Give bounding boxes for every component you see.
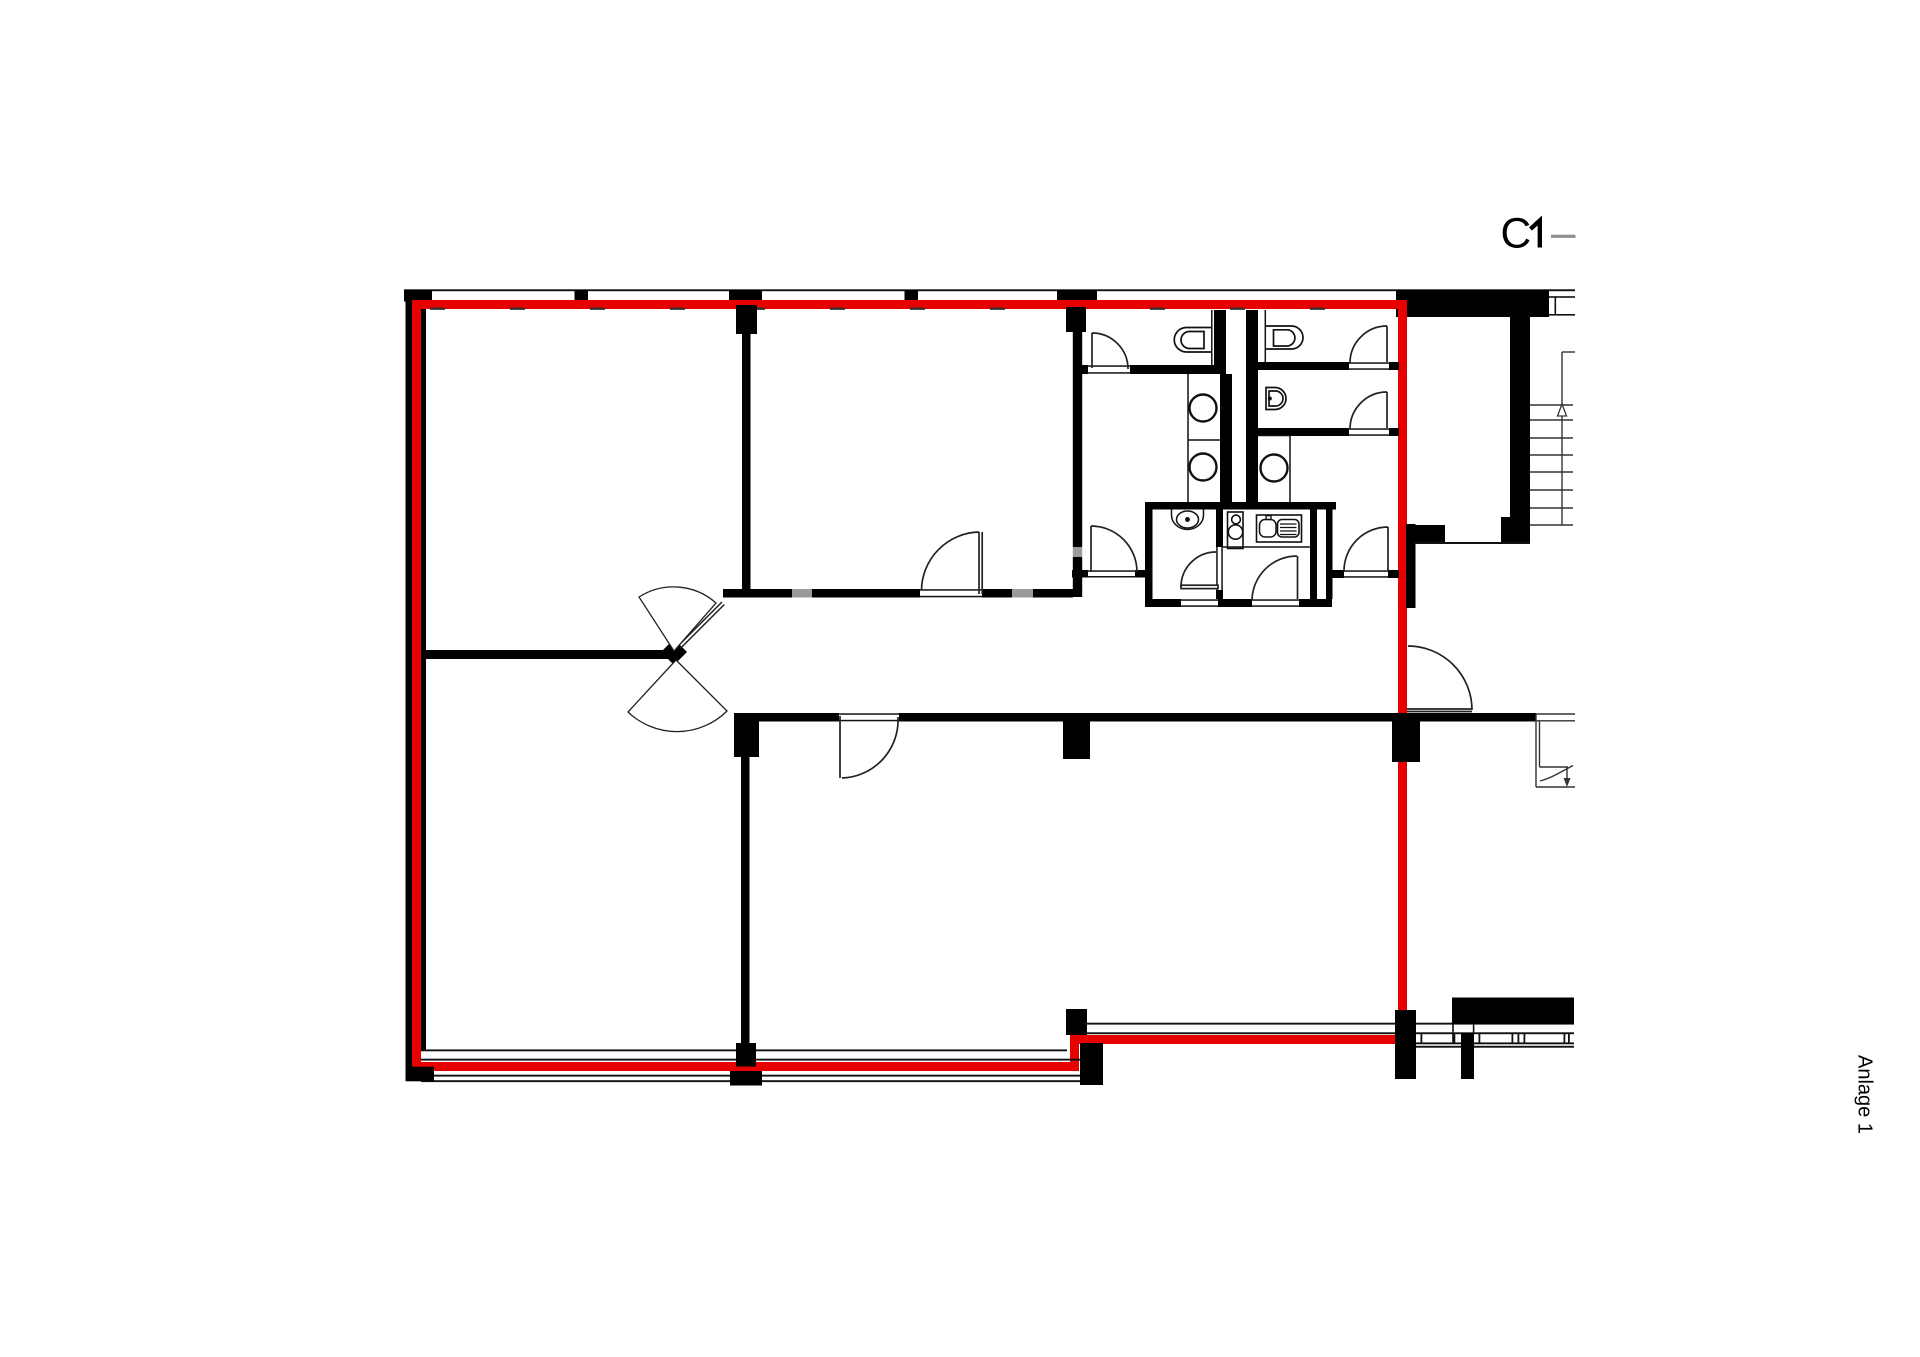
svg-text:Anlage 1: Anlage 1 [1854, 1055, 1876, 1134]
svg-text:C: C [1501, 211, 1532, 258]
